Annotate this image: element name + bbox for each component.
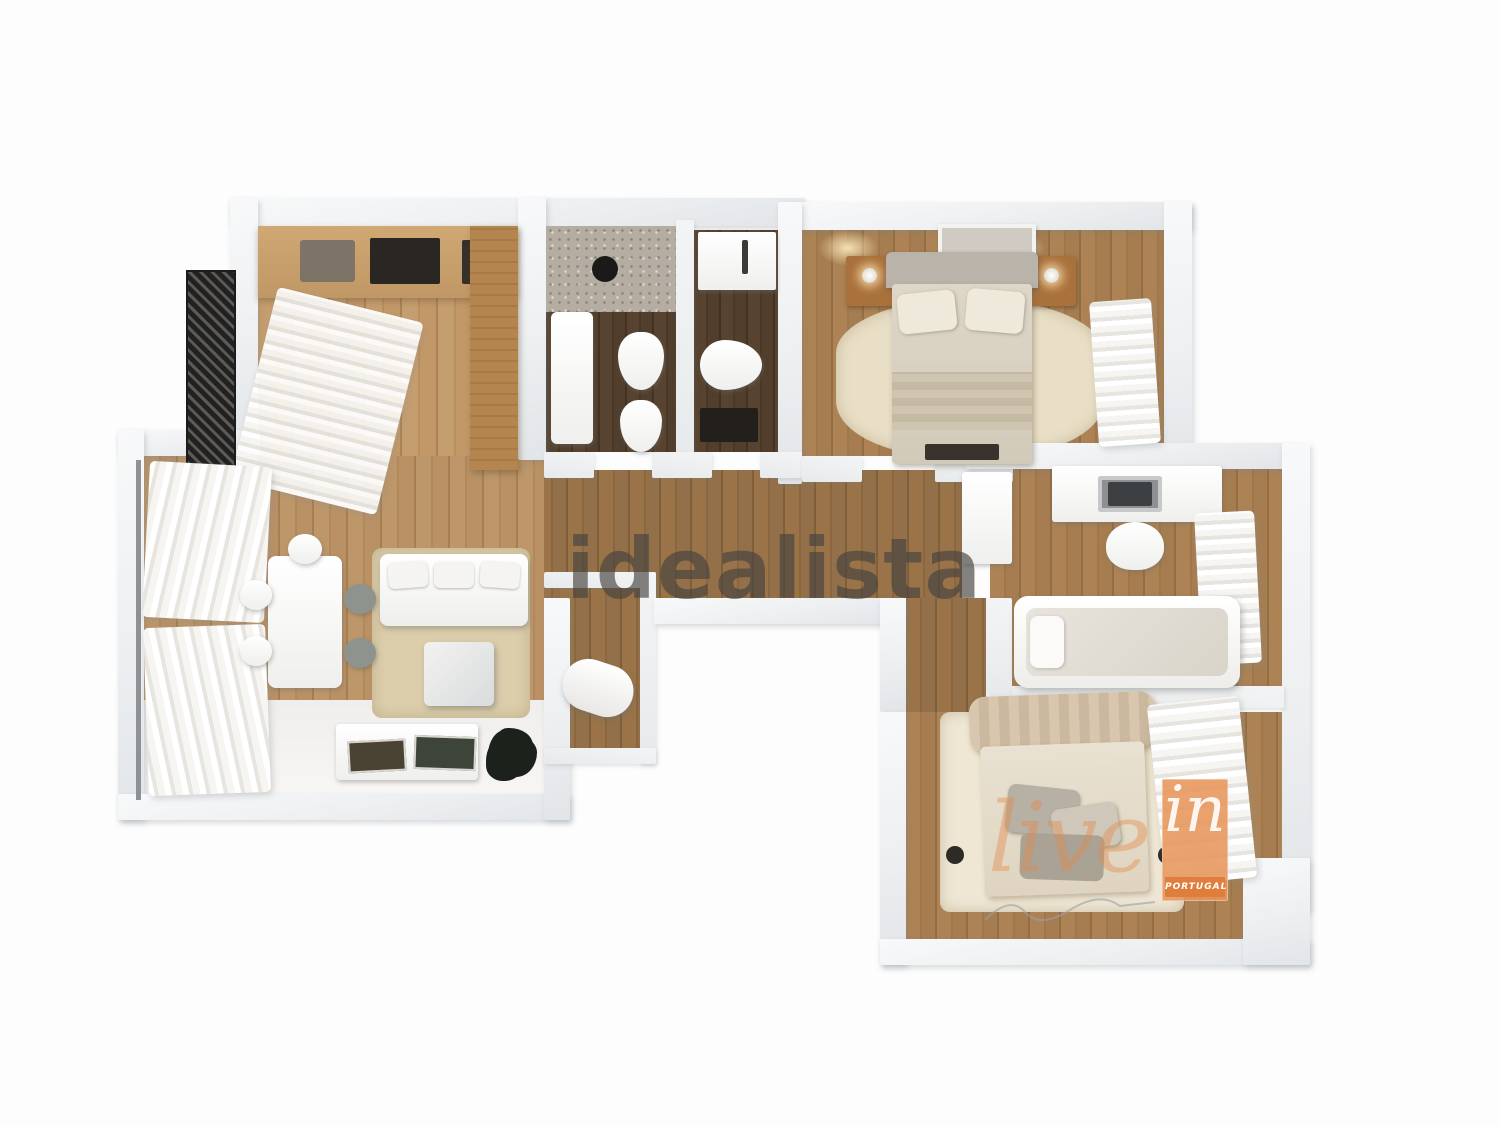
tv-screen-1 — [347, 739, 407, 774]
dining-chair-right-2 — [344, 638, 376, 668]
sofa — [380, 554, 528, 626]
bed-pillow-left — [896, 289, 958, 335]
bedroom-1-lamp-right — [1044, 268, 1059, 283]
kitchen-window-shutter — [186, 270, 236, 474]
bathroom-1-vanity — [551, 312, 593, 444]
idealista-watermark: idealista — [566, 520, 982, 618]
bed-throw — [892, 372, 1032, 430]
dining-chair-top — [288, 534, 322, 564]
logo-portugal-text: PORTUGAL — [1165, 877, 1225, 897]
wall-left-bedroom-2 — [880, 712, 906, 965]
bedroom-2-lamp-left — [946, 846, 964, 864]
wall-under-bath1-a — [544, 452, 594, 478]
wall-right-living — [544, 598, 570, 820]
wall-right-bedroom-1 — [1164, 202, 1192, 484]
tv-screen-2 — [413, 735, 476, 771]
alcove-wall-bottom — [544, 748, 656, 764]
wall-under-baths-b — [652, 452, 712, 478]
dining-chair-right-1 — [344, 584, 376, 614]
sofa-cushion-2 — [434, 562, 474, 588]
bed-headboard — [886, 252, 1038, 288]
bathroom-2-mat — [700, 408, 758, 442]
wall-bath1-bath2 — [676, 220, 694, 458]
logo-in-text: in — [1162, 773, 1228, 847]
shower-head — [592, 256, 618, 282]
dining-chair-left-2 — [240, 636, 272, 666]
bathtub — [1014, 596, 1240, 688]
bathtub-pillow — [1030, 616, 1064, 668]
living-window-frame — [136, 460, 141, 800]
office-chair — [1106, 522, 1164, 570]
wall-under-bath2-c — [760, 452, 802, 478]
kitchen-tall-cabinet — [470, 226, 518, 470]
bedroom-1-bed — [892, 252, 1032, 464]
dining-chair-left-1 — [240, 580, 272, 610]
bed-pillow-right — [964, 288, 1025, 335]
bathroom-2-faucet — [742, 240, 748, 274]
wall-right-outer — [1282, 443, 1310, 911]
kitchen-cooktop — [370, 238, 440, 284]
wall-kitchen-bath1 — [518, 198, 546, 460]
bedroom-1-lamp-left — [862, 268, 877, 283]
wall-under-bedroom1-a — [802, 456, 862, 482]
coffee-table-ottoman — [424, 642, 494, 706]
sofa-cushion-1 — [387, 561, 429, 590]
sofa-cushion-3 — [479, 561, 521, 590]
live-in-portugal-logo: in PORTUGAL — [1162, 779, 1228, 901]
kitchen-sink — [300, 240, 355, 282]
dining-table — [268, 556, 342, 688]
live-watermark: live — [988, 782, 1148, 894]
bedroom-1-bench — [925, 444, 999, 460]
office-monitor-screen — [1108, 482, 1152, 506]
floor-plan-image: idealista live in PORTUGAL — [0, 0, 1500, 1126]
wall-bottom-living — [118, 794, 570, 820]
sketch-lines — [980, 890, 1160, 930]
bathroom-2-vanity — [698, 232, 776, 290]
wall-corridor-right — [986, 598, 1012, 694]
wall-bath2-bedroom1 — [778, 202, 802, 484]
bedroom-1-curtain — [1089, 298, 1161, 447]
